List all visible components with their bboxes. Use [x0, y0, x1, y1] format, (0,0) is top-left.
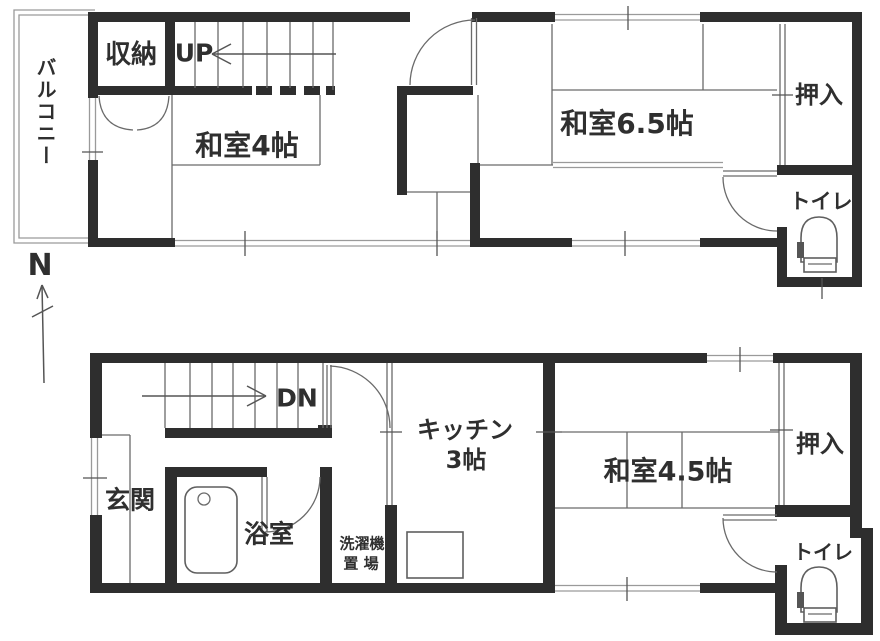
kitchen-label-line1: キッチン	[417, 418, 513, 442]
kitchen-sink-icon	[407, 532, 463, 578]
toilet-icon	[797, 567, 837, 622]
washitsu65-label: 和室6.5帖	[560, 110, 694, 138]
storage-double-door-arcs	[99, 96, 169, 130]
bathtub-icon	[185, 487, 237, 573]
washitsu45-label: 和室4.5帖	[604, 459, 733, 486]
lower-toilet-door-arc	[723, 515, 777, 572]
balcony-label: バルコニー	[35, 57, 55, 167]
dn-label: DN	[276, 386, 318, 411]
up-arrow-icon	[212, 44, 336, 64]
upper-oshiire-label: 押入	[795, 83, 843, 107]
entrance-sliding-door	[83, 438, 107, 515]
floor-plan-drawing	[0, 0, 880, 641]
north-label: N	[27, 251, 52, 281]
lower-toilet-label: トイレ	[793, 542, 853, 562]
kitchen-partition	[380, 363, 402, 593]
floor-plan-page: バルコニー 収納 UP 和室4帖 和室6.5帖 押入 トイレ N DN 玄関 浴…	[0, 0, 880, 641]
dn-arrow-icon	[142, 386, 266, 406]
kitchen-label-line2: 3帖	[446, 448, 487, 472]
laundry-label-line1: 洗濯機	[339, 537, 384, 552]
genkan-label: 玄関	[105, 488, 155, 513]
washitsu4-label: 和室4帖	[195, 132, 298, 160]
up-label: UP	[175, 41, 214, 66]
upper-toilet-door-arc	[723, 171, 777, 231]
lower-floor-plan	[83, 347, 873, 635]
storage-label: 収納	[105, 42, 157, 68]
kitchen-door-arc	[327, 365, 390, 428]
north-arrow-icon	[32, 285, 53, 383]
landing-door-arc	[410, 18, 477, 85]
laundry-label-line2: 置 場	[343, 557, 378, 572]
upper-toilet-label: トイレ	[790, 192, 853, 213]
kitchen-washitsu-wall	[536, 363, 562, 593]
lower-oshiire-label: 押入	[796, 432, 844, 456]
bathroom-label: 浴室	[244, 522, 294, 547]
